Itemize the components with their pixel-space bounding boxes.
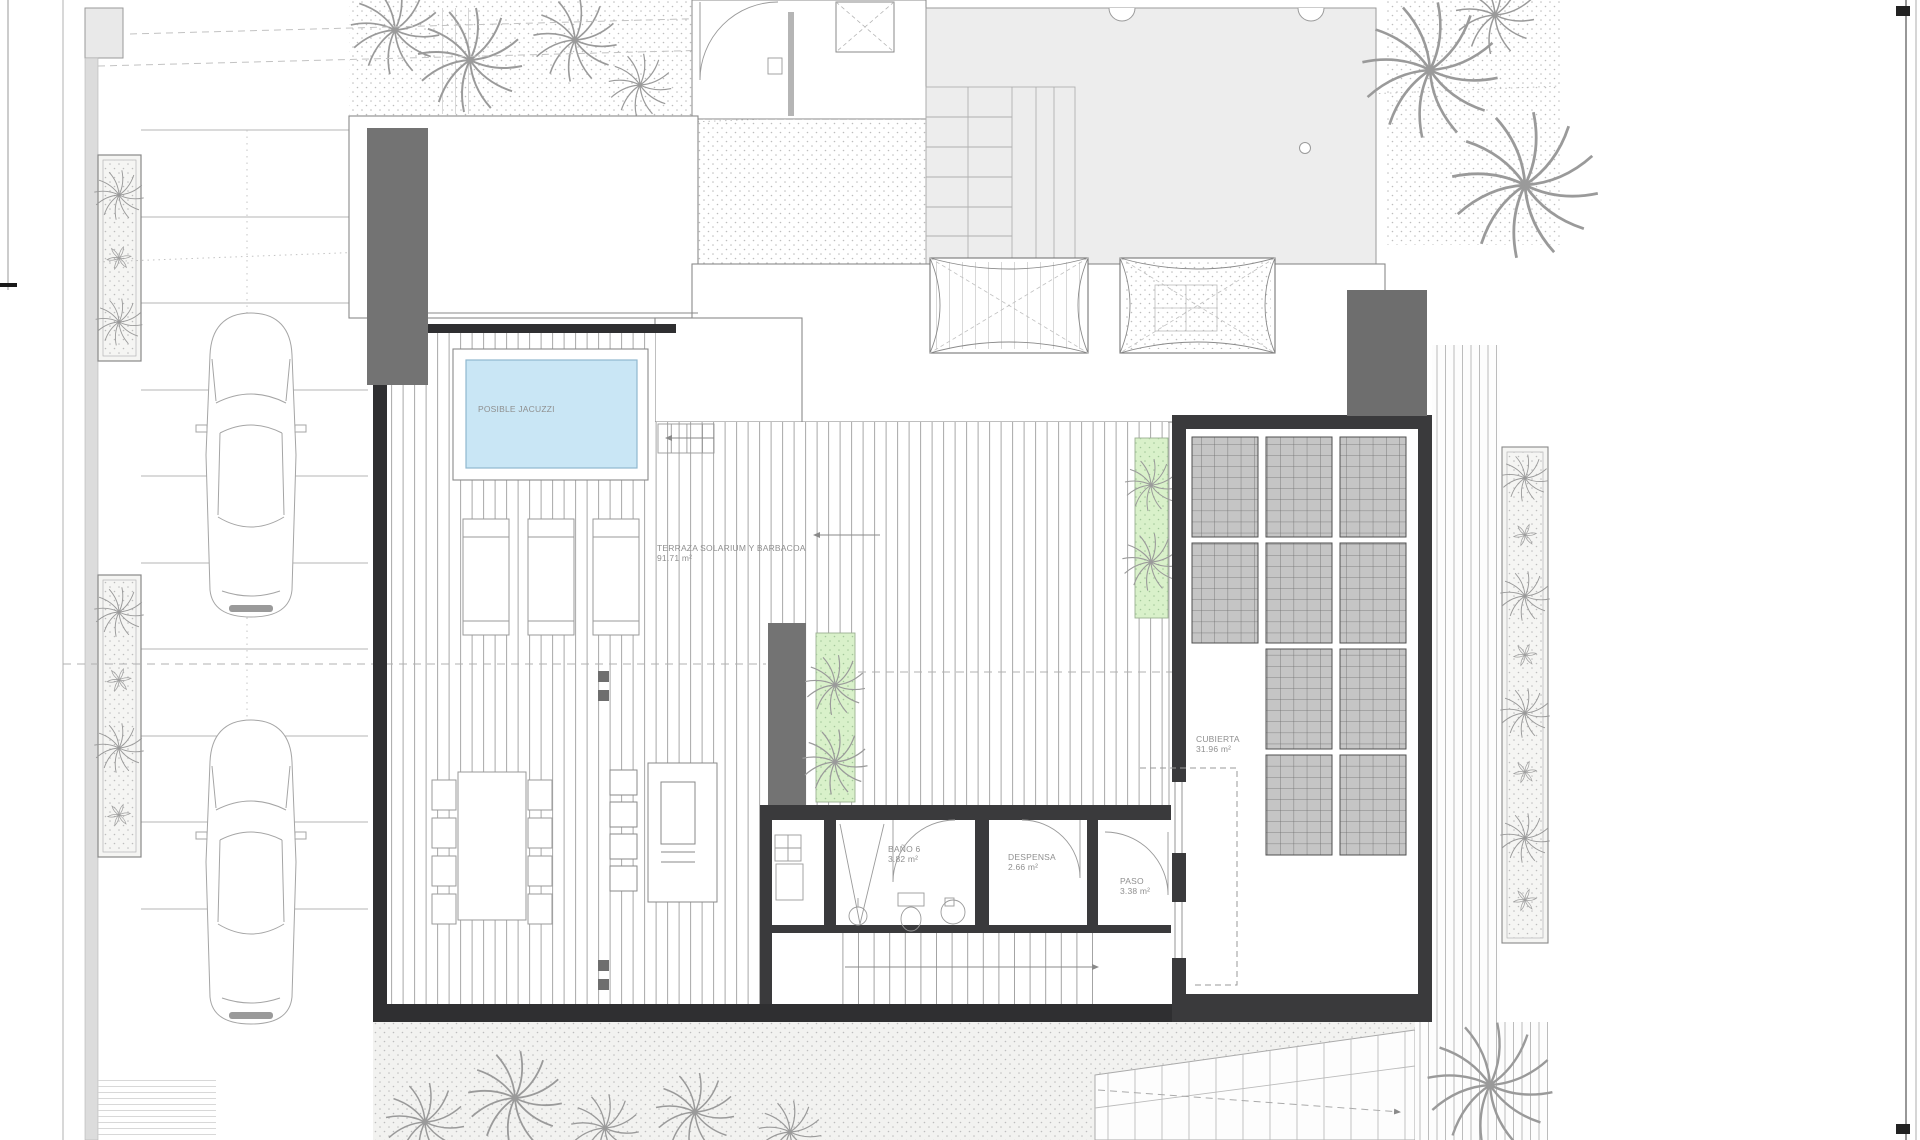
room-area: 3.38 m² bbox=[1120, 886, 1150, 896]
room-name: TERRAZA SOLARIUM Y BARBACOA bbox=[657, 543, 806, 553]
gray-roof bbox=[926, 8, 1376, 264]
floor-plan-drawing bbox=[0, 0, 1920, 1140]
label-paso: PASO 3.38 m² bbox=[1120, 876, 1150, 896]
rooms-block bbox=[760, 805, 1186, 1004]
room-name: PASO bbox=[1120, 876, 1150, 886]
room-area: 3.82 m² bbox=[888, 854, 920, 864]
pool-jacuzzi bbox=[453, 349, 648, 480]
wall-band-mid bbox=[768, 623, 806, 805]
label-bano6: BAÑO 6 3.82 m² bbox=[888, 844, 920, 864]
staircase bbox=[838, 933, 1106, 1004]
cubierta-box bbox=[1140, 415, 1432, 1022]
roof-notch bbox=[655, 318, 802, 422]
wall-block-top-right bbox=[1347, 290, 1427, 416]
parked-car-top bbox=[196, 313, 306, 617]
planter-left-bottom bbox=[94, 575, 143, 857]
label-posible-jacuzzi-text: POSIBLE JACUZZI bbox=[478, 404, 555, 414]
label-terraza-solarium: TERRAZA SOLARIUM Y BARBACOA 91.71 m² bbox=[657, 543, 806, 563]
wall-block-left bbox=[367, 128, 428, 385]
parked-car-bottom bbox=[196, 720, 306, 1024]
room-area: 31.96 m² bbox=[1196, 744, 1240, 754]
label-cubierta: CUBIERTA 31.96 m² bbox=[1196, 734, 1240, 754]
label-despensa: DESPENSA 2.66 m² bbox=[1008, 852, 1056, 872]
planter-strip-right bbox=[1500, 447, 1549, 943]
side-deck-right bbox=[1432, 345, 1500, 1022]
pillow-skylight-right bbox=[1120, 258, 1275, 353]
sand-area bbox=[692, 119, 926, 264]
planter-left-top bbox=[94, 155, 143, 361]
floor-plan-sheet: POSIBLE JACUZZI TERRAZA SOLARIUM Y BARBA… bbox=[0, 0, 1920, 1140]
skylight-x bbox=[836, 2, 894, 52]
palm-bottom-right bbox=[1415, 1022, 1552, 1140]
palm-strip-top-right bbox=[1362, 0, 1597, 258]
room-name: CUBIERTA bbox=[1196, 734, 1240, 744]
top-service-room bbox=[692, 0, 926, 119]
room-area: 2.66 m² bbox=[1008, 862, 1056, 872]
dining-table bbox=[432, 772, 552, 924]
pillow-skylight-left bbox=[930, 258, 1088, 353]
label-posible-jacuzzi: POSIBLE JACUZZI bbox=[478, 404, 555, 414]
room-name: BAÑO 6 bbox=[888, 844, 920, 854]
room-area: 91.71 m² bbox=[657, 553, 806, 563]
room-name: DESPENSA bbox=[1008, 852, 1056, 862]
sun-loungers bbox=[463, 519, 639, 635]
